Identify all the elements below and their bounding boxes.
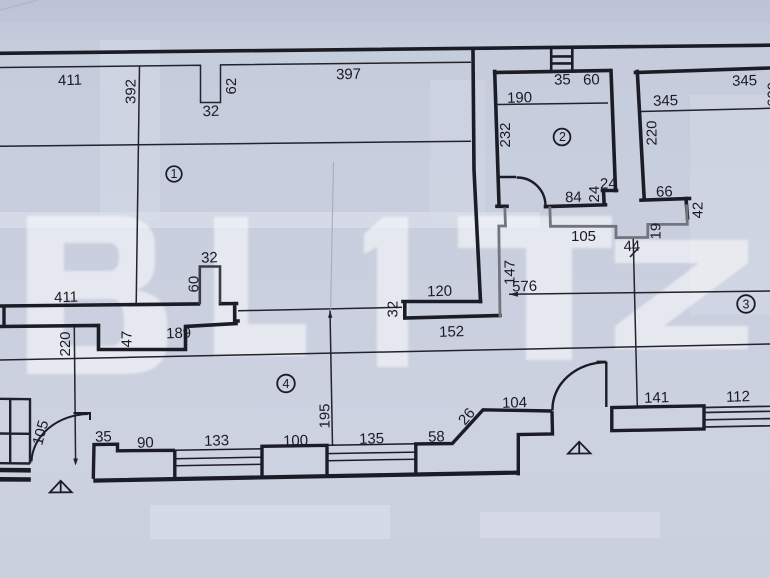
svg-text:44: 44 [623,238,640,256]
svg-text:24: 24 [586,186,603,203]
svg-text:90: 90 [137,434,154,452]
svg-text:4: 4 [283,377,290,391]
svg-text:120: 120 [427,283,453,301]
svg-text:35: 35 [554,71,571,89]
svg-text:195: 195 [317,403,334,428]
svg-text:32: 32 [201,249,218,267]
svg-text:220: 220 [57,331,74,356]
svg-text:19: 19 [648,223,665,240]
svg-text:133: 133 [204,432,230,450]
svg-text:220: 220 [644,120,661,145]
svg-text:35: 35 [95,428,112,446]
svg-text:152: 152 [439,323,465,341]
svg-text:60: 60 [186,276,203,293]
svg-text:189: 189 [166,325,192,343]
svg-text:2: 2 [559,130,566,144]
svg-text:32: 32 [202,103,219,121]
svg-text:397: 397 [336,66,362,84]
svg-text:232: 232 [497,122,514,147]
svg-text:392: 392 [123,79,140,104]
svg-text:345: 345 [732,72,758,90]
svg-text:60: 60 [583,71,600,89]
svg-text:100: 100 [283,432,309,450]
svg-text:32: 32 [385,301,402,318]
svg-text:3: 3 [743,298,750,312]
svg-text:84: 84 [565,189,582,207]
svg-text:411: 411 [54,289,78,307]
svg-text:62: 62 [223,78,240,95]
svg-text:42: 42 [690,202,707,219]
svg-text:104: 104 [502,394,528,412]
svg-text:47: 47 [119,331,136,348]
svg-text:147: 147 [502,260,519,285]
svg-text:1: 1 [171,167,178,181]
svg-text:105: 105 [571,228,596,245]
svg-text:66: 66 [656,183,673,201]
svg-text:58: 58 [428,428,445,446]
svg-text:141: 141 [644,389,670,407]
svg-text:112: 112 [726,388,750,406]
svg-text:411: 411 [58,72,82,90]
svg-text:600: 600 [765,82,770,107]
svg-text:135: 135 [359,430,385,448]
svg-text:345: 345 [653,92,679,110]
svg-text:190: 190 [507,89,533,107]
